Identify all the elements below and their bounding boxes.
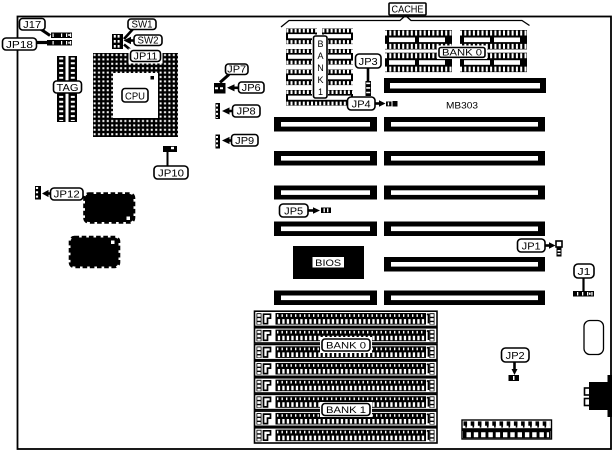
svg-text:MB303: MB303 [446, 101, 478, 111]
svg-text:A: A [317, 51, 323, 61]
svg-text:JP12: JP12 [54, 190, 80, 201]
svg-text:JP10: JP10 [158, 169, 184, 180]
svg-text:JP8: JP8 [237, 107, 256, 118]
svg-text:1: 1 [318, 87, 323, 97]
svg-text:BANK 1: BANK 1 [326, 405, 366, 416]
svg-text:B: B [317, 39, 323, 49]
svg-text:BIOS: BIOS [315, 258, 341, 268]
svg-text:JP18: JP18 [6, 40, 34, 51]
svg-text:J1: J1 [578, 267, 592, 278]
svg-text:K: K [317, 75, 323, 85]
svg-text:N: N [317, 63, 324, 73]
svg-text:CACHE: CACHE [392, 5, 424, 16]
svg-text:SW1: SW1 [132, 20, 153, 31]
svg-text:TAG: TAG [57, 83, 79, 94]
svg-text:JP4: JP4 [352, 100, 371, 111]
svg-text:JP3: JP3 [359, 57, 378, 68]
svg-text:JP6: JP6 [242, 83, 261, 94]
svg-text:SW2: SW2 [138, 36, 159, 47]
svg-text:JP1: JP1 [522, 242, 541, 253]
svg-text:CPU: CPU [125, 91, 145, 102]
svg-text:JP7: JP7 [227, 65, 246, 76]
svg-text:JP11: JP11 [134, 52, 158, 63]
svg-text:BANK 0: BANK 0 [326, 341, 366, 352]
svg-text:BANK 0: BANK 0 [442, 48, 482, 58]
svg-text:JP9: JP9 [235, 136, 254, 147]
svg-text:JP5: JP5 [284, 207, 303, 218]
svg-text:JP2: JP2 [506, 351, 525, 362]
svg-text:J17: J17 [23, 20, 41, 31]
